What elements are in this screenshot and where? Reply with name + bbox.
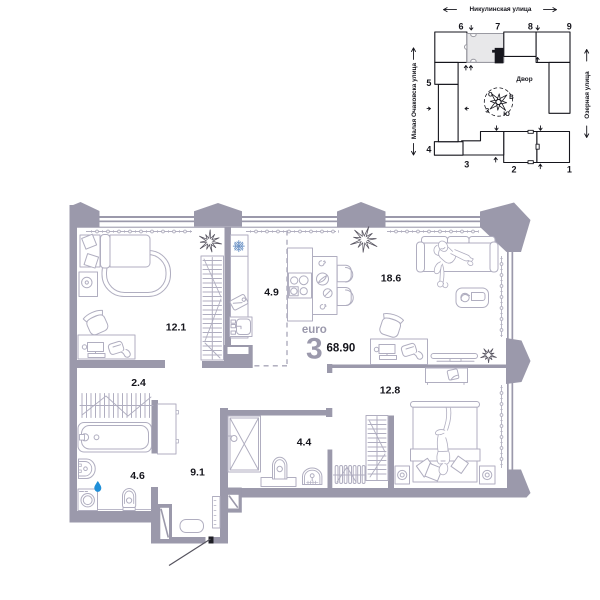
svg-text:4.4: 4.4: [297, 436, 312, 448]
svg-text:2: 2: [511, 165, 516, 175]
svg-text:Двор: Двор: [516, 76, 532, 83]
svg-text:9.1: 9.1: [190, 467, 205, 479]
svg-text:8: 8: [528, 21, 533, 31]
svg-text:7: 7: [495, 21, 500, 31]
svg-text:9: 9: [567, 21, 572, 31]
svg-text:4.9: 4.9: [264, 287, 279, 299]
svg-text:12.8: 12.8: [380, 384, 401, 396]
svg-text:5: 5: [426, 78, 431, 88]
svg-text:Никулинская улица: Никулинская улица: [470, 6, 532, 13]
svg-text:2.4: 2.4: [131, 377, 146, 389]
svg-text:Озерная улица: Озерная улица: [584, 71, 591, 119]
svg-text:68.90: 68.90: [327, 343, 356, 355]
svg-text:3: 3: [464, 160, 469, 170]
svg-text:Ю: Ю: [503, 111, 510, 118]
svg-text:6: 6: [458, 21, 463, 31]
svg-text:12.1: 12.1: [166, 322, 187, 334]
svg-text:В: В: [509, 94, 514, 101]
svg-text:С: С: [488, 92, 493, 99]
svg-text:4: 4: [426, 144, 431, 154]
svg-text:З: З: [485, 108, 489, 115]
svg-text:4.6: 4.6: [130, 470, 145, 482]
svg-text:3: 3: [306, 333, 323, 366]
svg-text:Малая Очаковска улица: Малая Очаковска улица: [411, 62, 418, 139]
svg-text:18.6: 18.6: [381, 273, 402, 285]
svg-text:1: 1: [567, 165, 572, 175]
